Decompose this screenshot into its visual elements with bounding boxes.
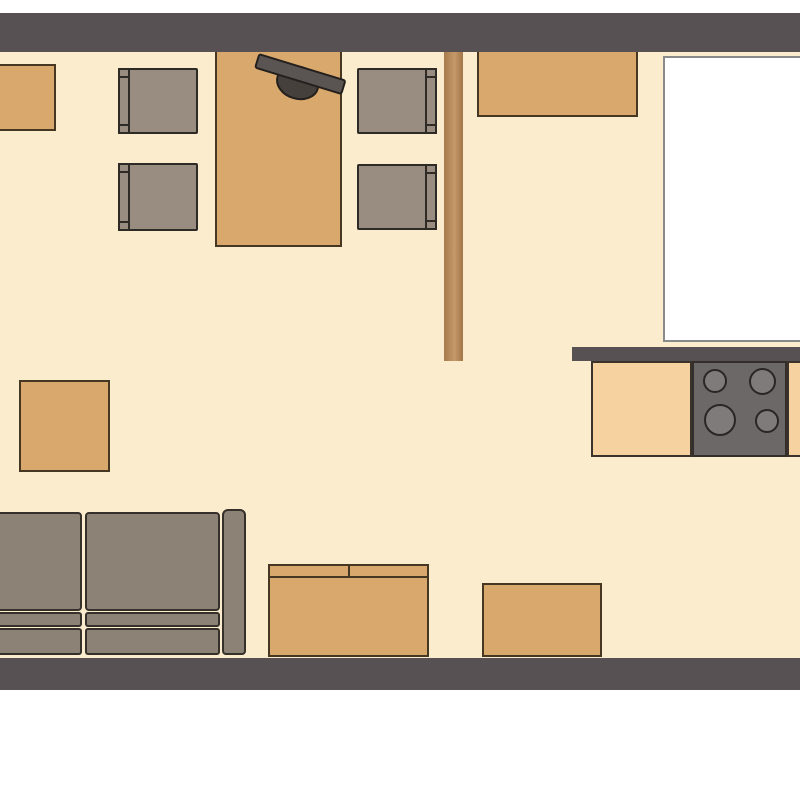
chair-backrest-post bbox=[425, 220, 437, 230]
chair-seat bbox=[128, 68, 198, 134]
chair-seat bbox=[357, 68, 427, 134]
floor-plan-canvas bbox=[0, 0, 800, 800]
sofa-seat-edge bbox=[85, 628, 220, 655]
sofa-seat-edge bbox=[0, 612, 82, 627]
small-cabinet[interactable] bbox=[0, 64, 56, 131]
burner-icon bbox=[703, 369, 727, 393]
dining-chair[interactable] bbox=[357, 68, 437, 134]
dining-chair[interactable] bbox=[118, 68, 198, 134]
chair-backrest bbox=[425, 74, 437, 128]
chair-backrest-post bbox=[118, 124, 130, 134]
sideboard[interactable] bbox=[477, 50, 638, 117]
white-appliance-unit[interactable] bbox=[663, 56, 800, 342]
bottom-wall bbox=[0, 658, 800, 690]
cabinet-door-divider bbox=[348, 566, 350, 576]
burner-icon bbox=[704, 404, 736, 436]
chair-backrest-post bbox=[425, 124, 437, 134]
sofa-seat-edge bbox=[0, 628, 82, 655]
cooktop[interactable] bbox=[692, 361, 787, 457]
chair-backrest bbox=[118, 169, 130, 225]
sofa[interactable] bbox=[0, 509, 246, 657]
chair-backrest-post bbox=[118, 68, 130, 78]
low-cabinet[interactable] bbox=[482, 583, 602, 657]
chair-backrest-post bbox=[118, 163, 130, 173]
sofa-back-cushion bbox=[0, 512, 82, 611]
kitchen-interior-wall bbox=[572, 347, 800, 361]
chair-backrest-post bbox=[118, 221, 130, 231]
media-cabinet[interactable] bbox=[268, 564, 429, 657]
dining-chair[interactable] bbox=[118, 163, 198, 231]
chair-backrest-post bbox=[425, 164, 437, 174]
sofa-seat-edge bbox=[85, 612, 220, 627]
chair-backrest bbox=[425, 170, 437, 224]
kitchen-counter-section[interactable] bbox=[591, 361, 692, 457]
tv-icon[interactable] bbox=[240, 45, 360, 105]
sofa-armrest bbox=[222, 509, 246, 655]
chair-backrest bbox=[118, 74, 130, 128]
square-side-table[interactable] bbox=[19, 380, 110, 472]
top-wall bbox=[0, 13, 800, 52]
dining-chair[interactable] bbox=[357, 164, 437, 230]
chair-backrest-post bbox=[425, 68, 437, 78]
sofa-back-cushion bbox=[85, 512, 220, 611]
burner-icon bbox=[749, 368, 776, 395]
kitchen-counter-section[interactable] bbox=[787, 361, 800, 457]
chair-seat bbox=[128, 163, 198, 231]
chair-seat bbox=[357, 164, 427, 230]
burner-icon bbox=[755, 409, 779, 433]
wooden-room-divider[interactable] bbox=[444, 52, 463, 361]
